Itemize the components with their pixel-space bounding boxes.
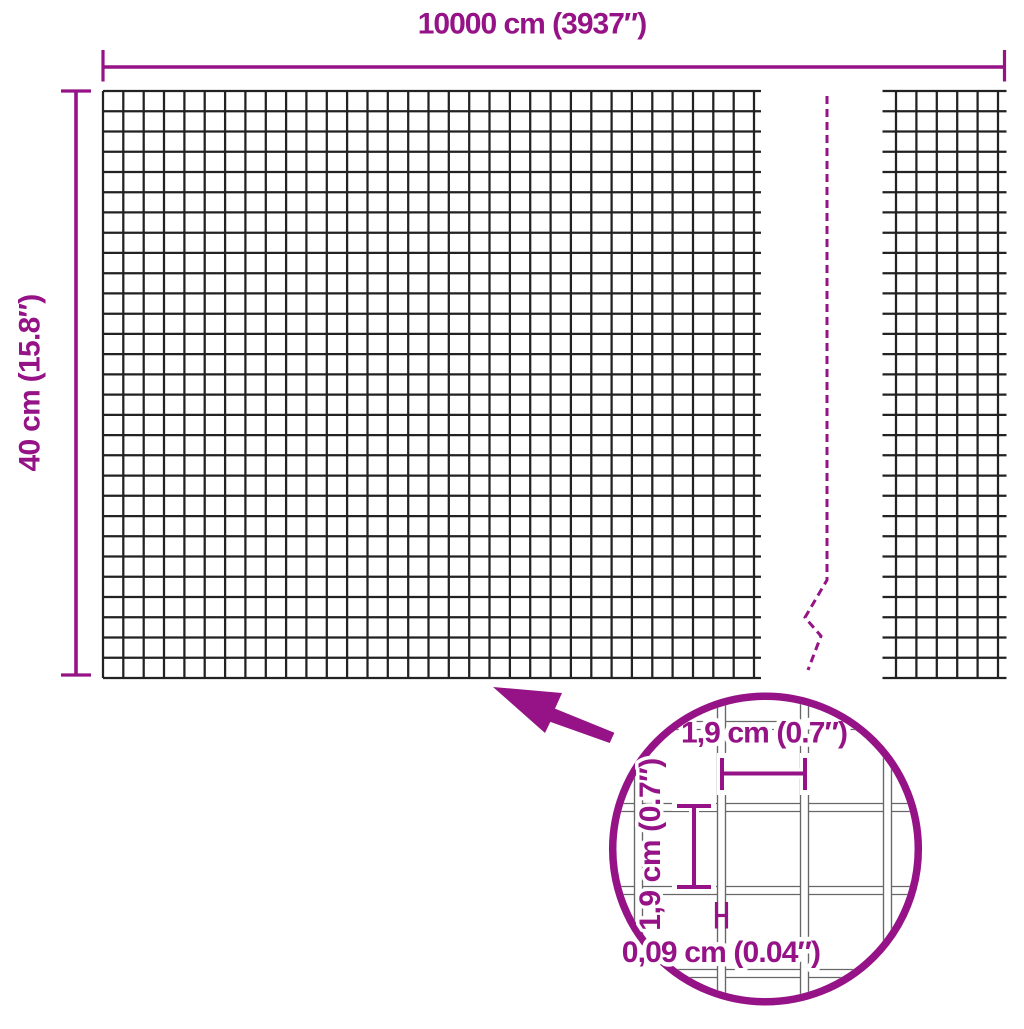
svg-text:0,09 cm (0.04″): 0,09 cm (0.04″) xyxy=(622,936,820,969)
svg-text:1,9 cm (0.7″): 1,9 cm (0.7″) xyxy=(681,717,847,750)
svg-text:1,9 cm (0.7″): 1,9 cm (0.7″) xyxy=(634,758,667,931)
svg-text:10000 cm (3937″): 10000 cm (3937″) xyxy=(418,8,647,41)
svg-text:40 cm (15.8″): 40 cm (15.8″) xyxy=(14,294,47,471)
